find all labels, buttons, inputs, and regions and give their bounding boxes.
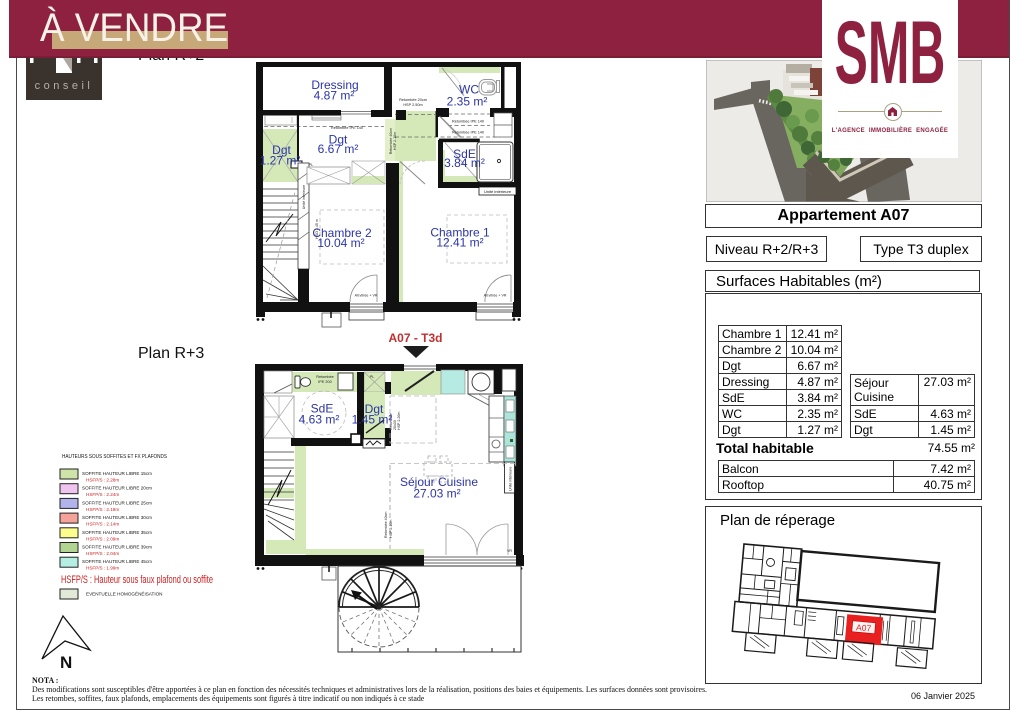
svg-text:HSFP/S : 2.19m: HSFP/S : 2.19m (86, 507, 119, 512)
svg-text:HSFP/S : 2.09m: HSFP/S : 2.09m (86, 536, 119, 541)
svg-text:HSP 2.10m: HSP 2.10m (393, 132, 397, 150)
svg-text:HSFP/S : 2.04m: HSFP/S : 2.04m (86, 551, 119, 556)
svg-text:12.41 m²: 12.41 m² (436, 236, 483, 250)
svg-text:6.67 m²: 6.67 m² (318, 142, 359, 156)
svg-text:HSP 2.50m: HSP 2.50m (403, 103, 422, 107)
svg-text:SOFFITE HAUTEUR LIBRE 30cm: SOFFITE HAUTEUR LIBRE 30cm (82, 515, 152, 520)
svg-text:HAUTEURS SOUS SOFFITES ET FX P: HAUTEURS SOUS SOFFITES ET FX PLAFONDS (62, 454, 168, 460)
svg-text:VR: VR (507, 549, 512, 553)
svg-text:Retombée IPE 140: Retombée IPE 140 (331, 126, 363, 130)
svg-text:27.03 m²: 27.03 m² (413, 487, 460, 501)
svg-text:Unité intérieure: Unité intérieure (509, 467, 513, 491)
svg-text:PL: PL (309, 163, 314, 167)
svg-text:SOFFITE HAUTEUR LIBRE 39cm: SOFFITE HAUTEUR LIBRE 39cm (82, 545, 152, 550)
svg-text:10.04 m²: 10.04 m² (317, 236, 364, 250)
svg-text:N: N (60, 653, 72, 672)
svg-text:4.63 m²: 4.63 m² (299, 413, 340, 427)
svg-text:Retombée: Retombée (316, 375, 334, 379)
svg-text:Retombée IPE 140: Retombée IPE 140 (452, 131, 484, 135)
svg-text:2.35 m²: 2.35 m² (447, 95, 488, 109)
svg-text:Unité intérieure: Unité intérieure (302, 185, 306, 209)
svg-text:A07: A07 (856, 622, 872, 633)
svg-text:HSFP/S : 2.28m: HSFP/S : 2.28m (86, 478, 119, 483)
svg-text:SOFFITE HAUTEUR LIBRE 45cm: SOFFITE HAUTEUR LIBRE 45cm (82, 559, 152, 564)
svg-text:SOFFITE HAUTEUR LIBRE 20cm: SOFFITE HAUTEUR LIBRE 20cm (82, 486, 152, 491)
svg-text:HSO 2.45 m: HSO 2.45 m (315, 219, 319, 239)
svg-text:Retombée 20cm: Retombée 20cm (399, 98, 427, 102)
svg-text:3.84 m²: 3.84 m² (444, 156, 485, 170)
svg-text:Retombée IPE 140: Retombée IPE 140 (452, 120, 484, 124)
svg-text:SOFFITE HAUTEUR LIBRE 15cm: SOFFITE HAUTEUR LIBRE 15cm (82, 471, 152, 476)
svg-text:1.27 m²: 1.27 m² (260, 154, 301, 168)
svg-text:HSP 2.20m: HSP 2.20m (397, 412, 401, 430)
svg-text:All.vitrée + VR: All.vitrée + VR (355, 294, 378, 298)
svg-text:HSFP/S : 1.99m: HSFP/S : 1.99m (86, 566, 119, 571)
svg-text:1.45 m²: 1.45 m² (352, 413, 393, 427)
svg-text:4.87 m²: 4.87 m² (314, 89, 355, 103)
svg-text:HSFP/S : 2.24m: HSFP/S : 2.24m (86, 492, 119, 497)
svg-text:IPE 200: IPE 200 (318, 380, 332, 384)
svg-text:All.vitrée + VR: All.vitrée + VR (484, 294, 507, 298)
svg-text:PL: PL (370, 375, 375, 379)
svg-text:HSFP/S : 2.14m: HSFP/S : 2.14m (86, 522, 119, 527)
svg-text:Retombée 40cm: Retombée 40cm (384, 512, 388, 538)
svg-text:Unité intérieure: Unité intérieure (484, 189, 512, 194)
svg-text:SOFFITE HAUTEUR LIBRE 25cm: SOFFITE HAUTEUR LIBRE 25cm (82, 500, 152, 505)
svg-text:HSFP/S : Hauteur sous faux pla: HSFP/S : Hauteur sous faux plafond ou so… (61, 574, 213, 586)
svg-text:A07 - T3d: A07 - T3d (388, 331, 442, 345)
svg-text:HSP 2.10m: HSP 2.10m (389, 520, 393, 538)
svg-text:EVENTUELLE HOMOGÉNÉISATION: EVENTUELLE HOMOGÉNÉISATION (86, 591, 163, 597)
svg-text:SOFFITE HAUTEUR LIBRE 35cm: SOFFITE HAUTEUR LIBRE 35cm (82, 530, 152, 535)
